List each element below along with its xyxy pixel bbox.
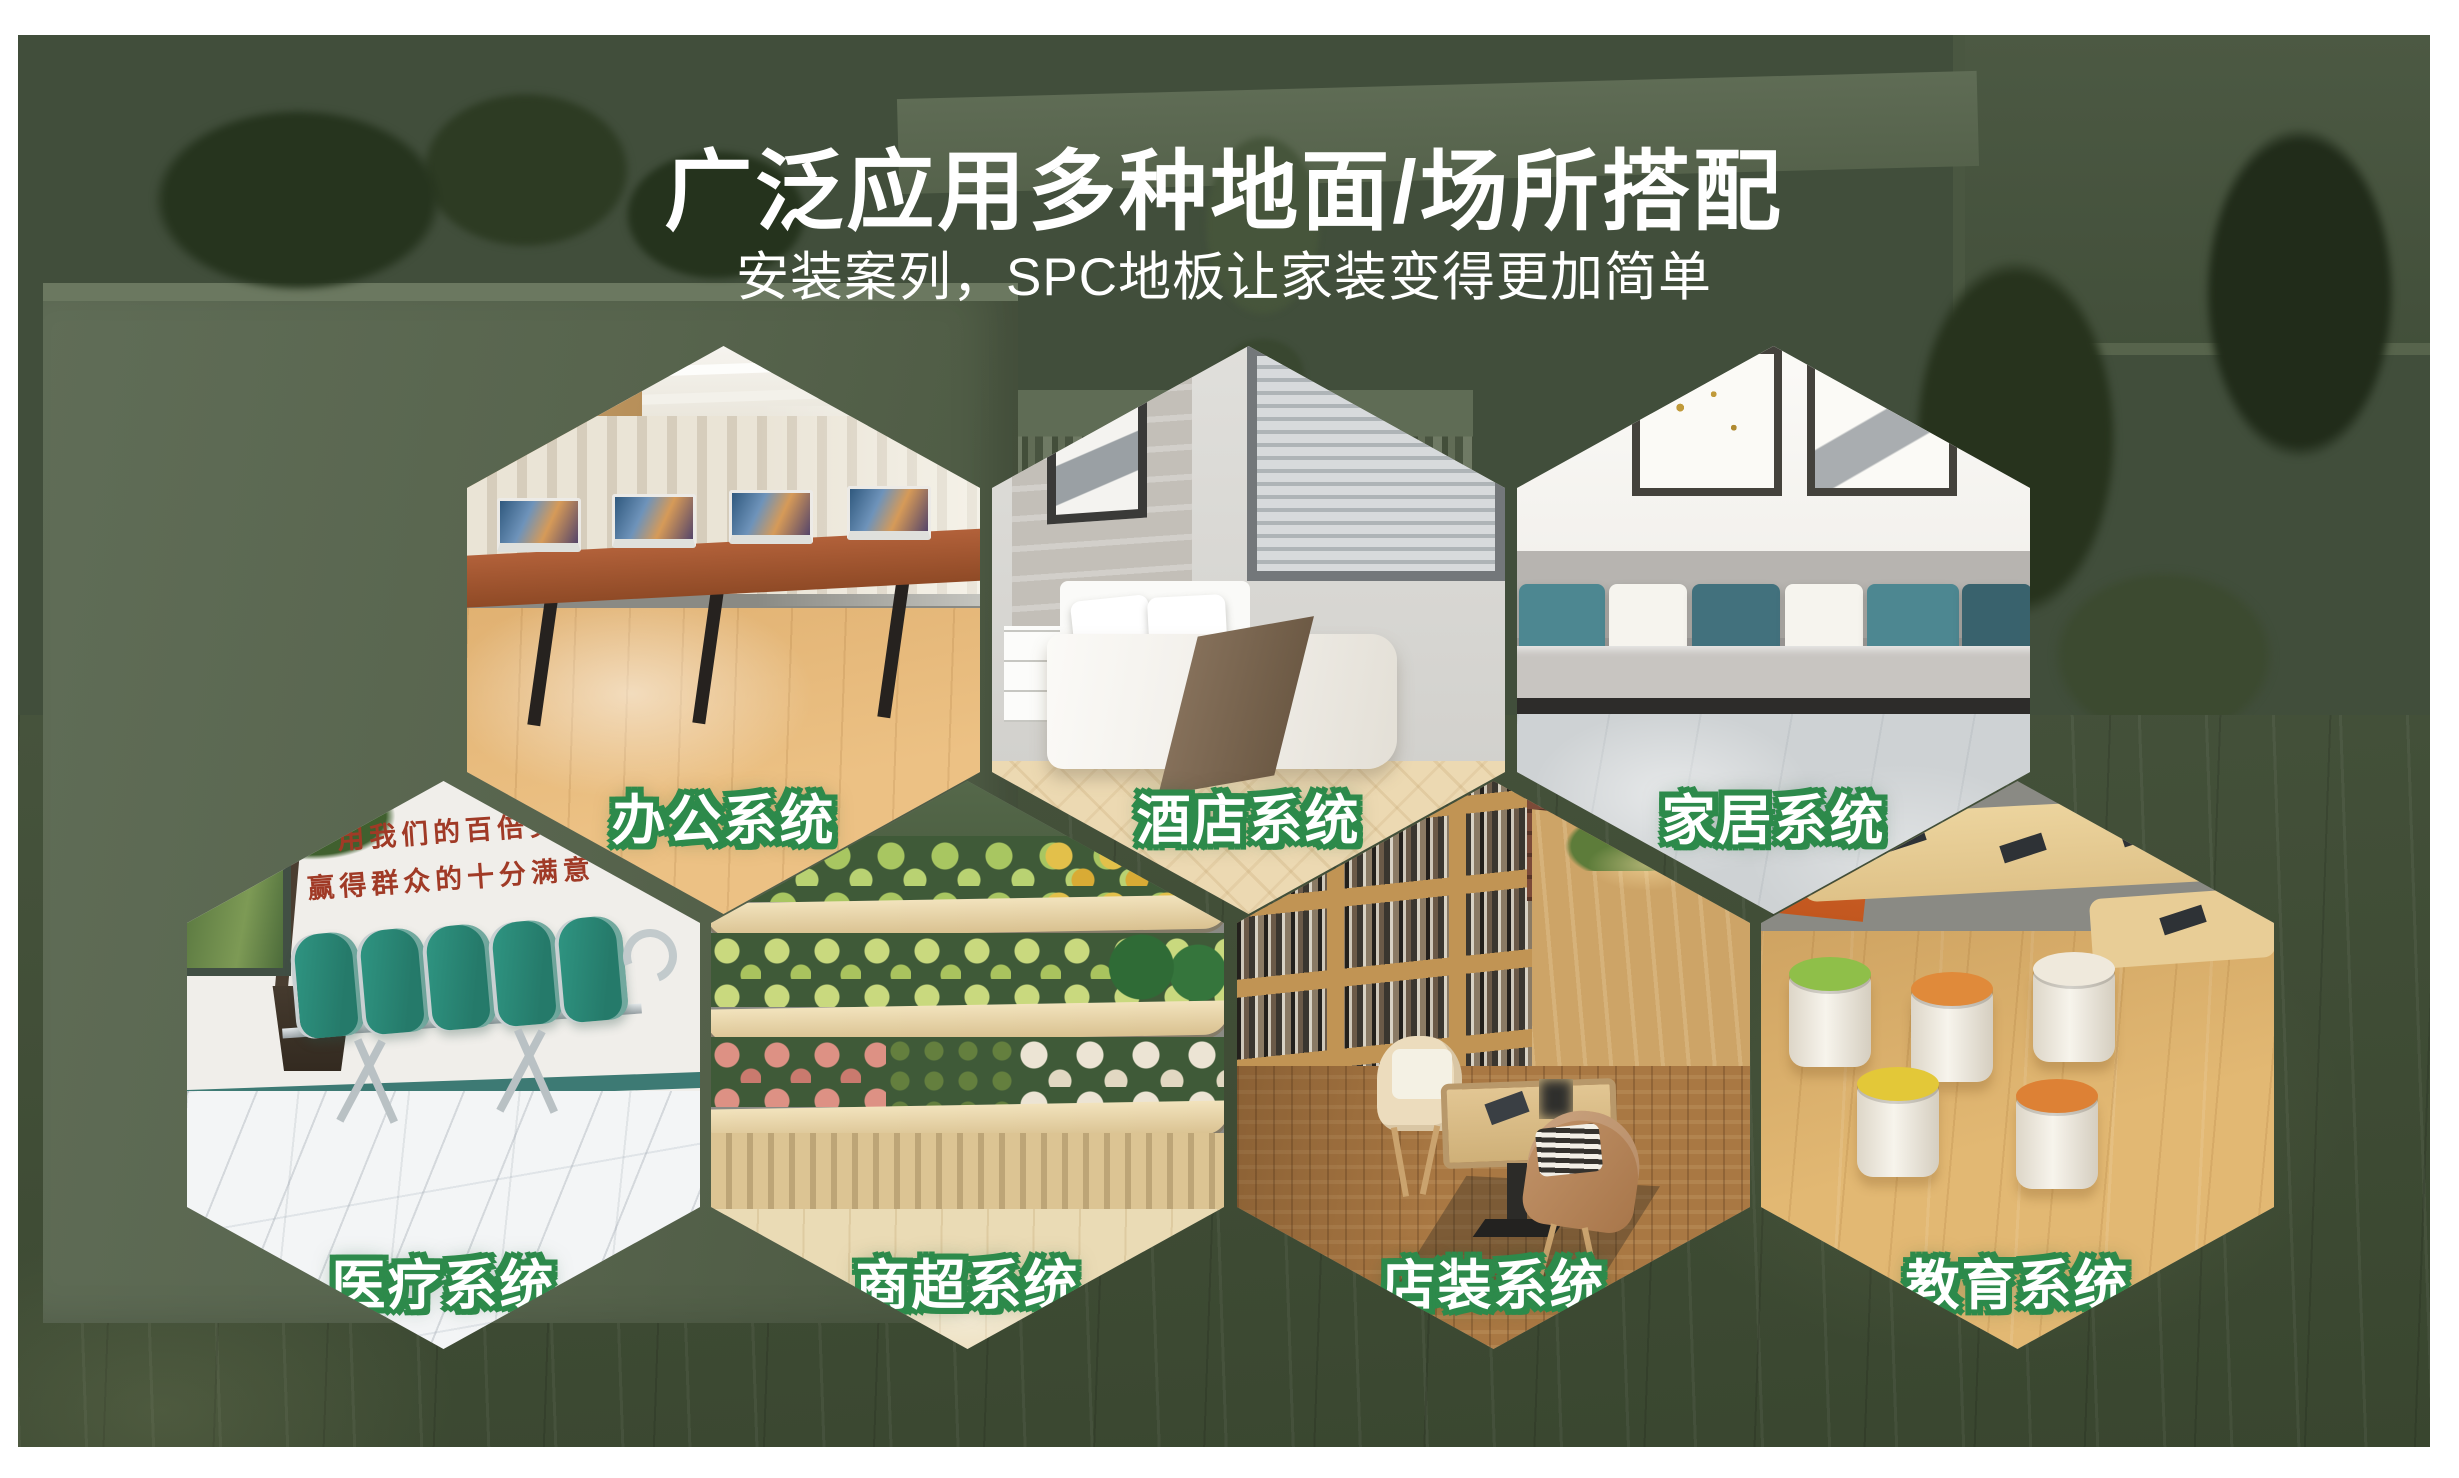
medical-bench-seat	[359, 926, 432, 1035]
education-stool-orange	[2016, 1093, 2098, 1189]
page-title: 广泛应用多种地面/场所搭配	[18, 121, 2430, 248]
medical-bench-seat	[293, 930, 366, 1039]
education-stool-yellow	[1857, 1081, 1939, 1177]
store-striped-pillow	[1535, 1123, 1604, 1177]
office-monitor	[729, 490, 813, 544]
medical-bench-seat	[425, 922, 498, 1031]
education-stool-top	[1911, 972, 1993, 1006]
market-eggs	[1016, 1037, 1224, 1107]
education-stool-green	[1789, 971, 1871, 1067]
home-picture-frame	[1632, 346, 1782, 496]
education-stool-top	[2016, 1079, 2098, 1113]
market-vegetables	[886, 1037, 1016, 1107]
home-sofa-seat	[1517, 646, 2030, 704]
medical-bench-seat	[491, 918, 564, 1027]
education-stool-white	[2033, 966, 2115, 1062]
medical-bench-seat	[557, 914, 630, 1023]
market-watermelons	[1106, 929, 1224, 1005]
office-monitor	[847, 486, 931, 540]
office-monitor	[612, 494, 696, 548]
page-subtitle: 安装案列，SPC地板让家装变得更加简单	[18, 235, 2430, 311]
page-frame: 广泛应用多种地面/场所搭配 安装案列，SPC地板让家装变得更加简单 办公系统	[0, 0, 2459, 1478]
market-apples	[711, 1037, 886, 1107]
education-stool-orange	[1911, 986, 1993, 1082]
education-stool-top	[1857, 1067, 1939, 1101]
education-stool-top	[1789, 957, 1871, 991]
education-stool-top	[2033, 952, 2115, 986]
poster: 广泛应用多种地面/场所搭配 安装案列，SPC地板让家装变得更加简单 办公系统	[18, 35, 2430, 1447]
home-sofa-base	[1517, 698, 2030, 714]
market-slatted-front	[711, 1133, 1224, 1215]
office-monitor	[497, 498, 581, 552]
